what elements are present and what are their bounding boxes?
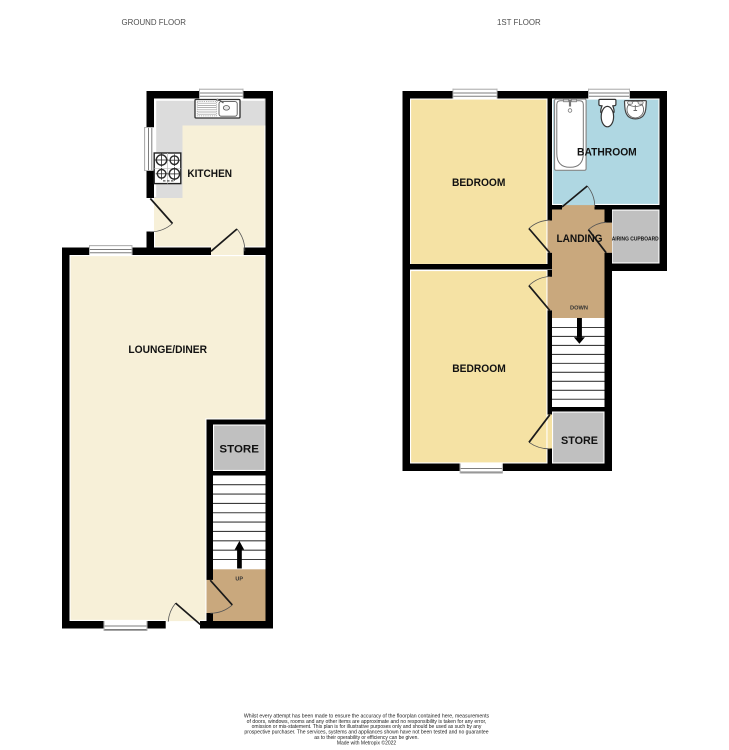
- svg-text:AIRING CUPBOARD: AIRING CUPBOARD: [612, 236, 659, 242]
- svg-text:1ST FLOOR: 1ST FLOOR: [497, 18, 541, 27]
- svg-text:DOWN: DOWN: [570, 305, 588, 311]
- svg-text:STORE: STORE: [561, 435, 598, 447]
- svg-text:UP: UP: [235, 577, 243, 583]
- svg-text:BATHROOM: BATHROOM: [577, 147, 637, 159]
- svg-text:GROUND FLOOR: GROUND FLOOR: [122, 18, 187, 27]
- svg-text:KITCHEN: KITCHEN: [187, 168, 232, 180]
- svg-text:Made with Metropix ©2022: Made with Metropix ©2022: [337, 739, 396, 746]
- svg-text:BEDROOM: BEDROOM: [452, 363, 506, 375]
- svg-text:LANDING: LANDING: [556, 233, 602, 245]
- svg-text:STORE: STORE: [219, 443, 259, 455]
- svg-text:BEDROOM: BEDROOM: [452, 177, 506, 189]
- svg-text:LOUNGE/DINER: LOUNGE/DINER: [128, 344, 207, 356]
